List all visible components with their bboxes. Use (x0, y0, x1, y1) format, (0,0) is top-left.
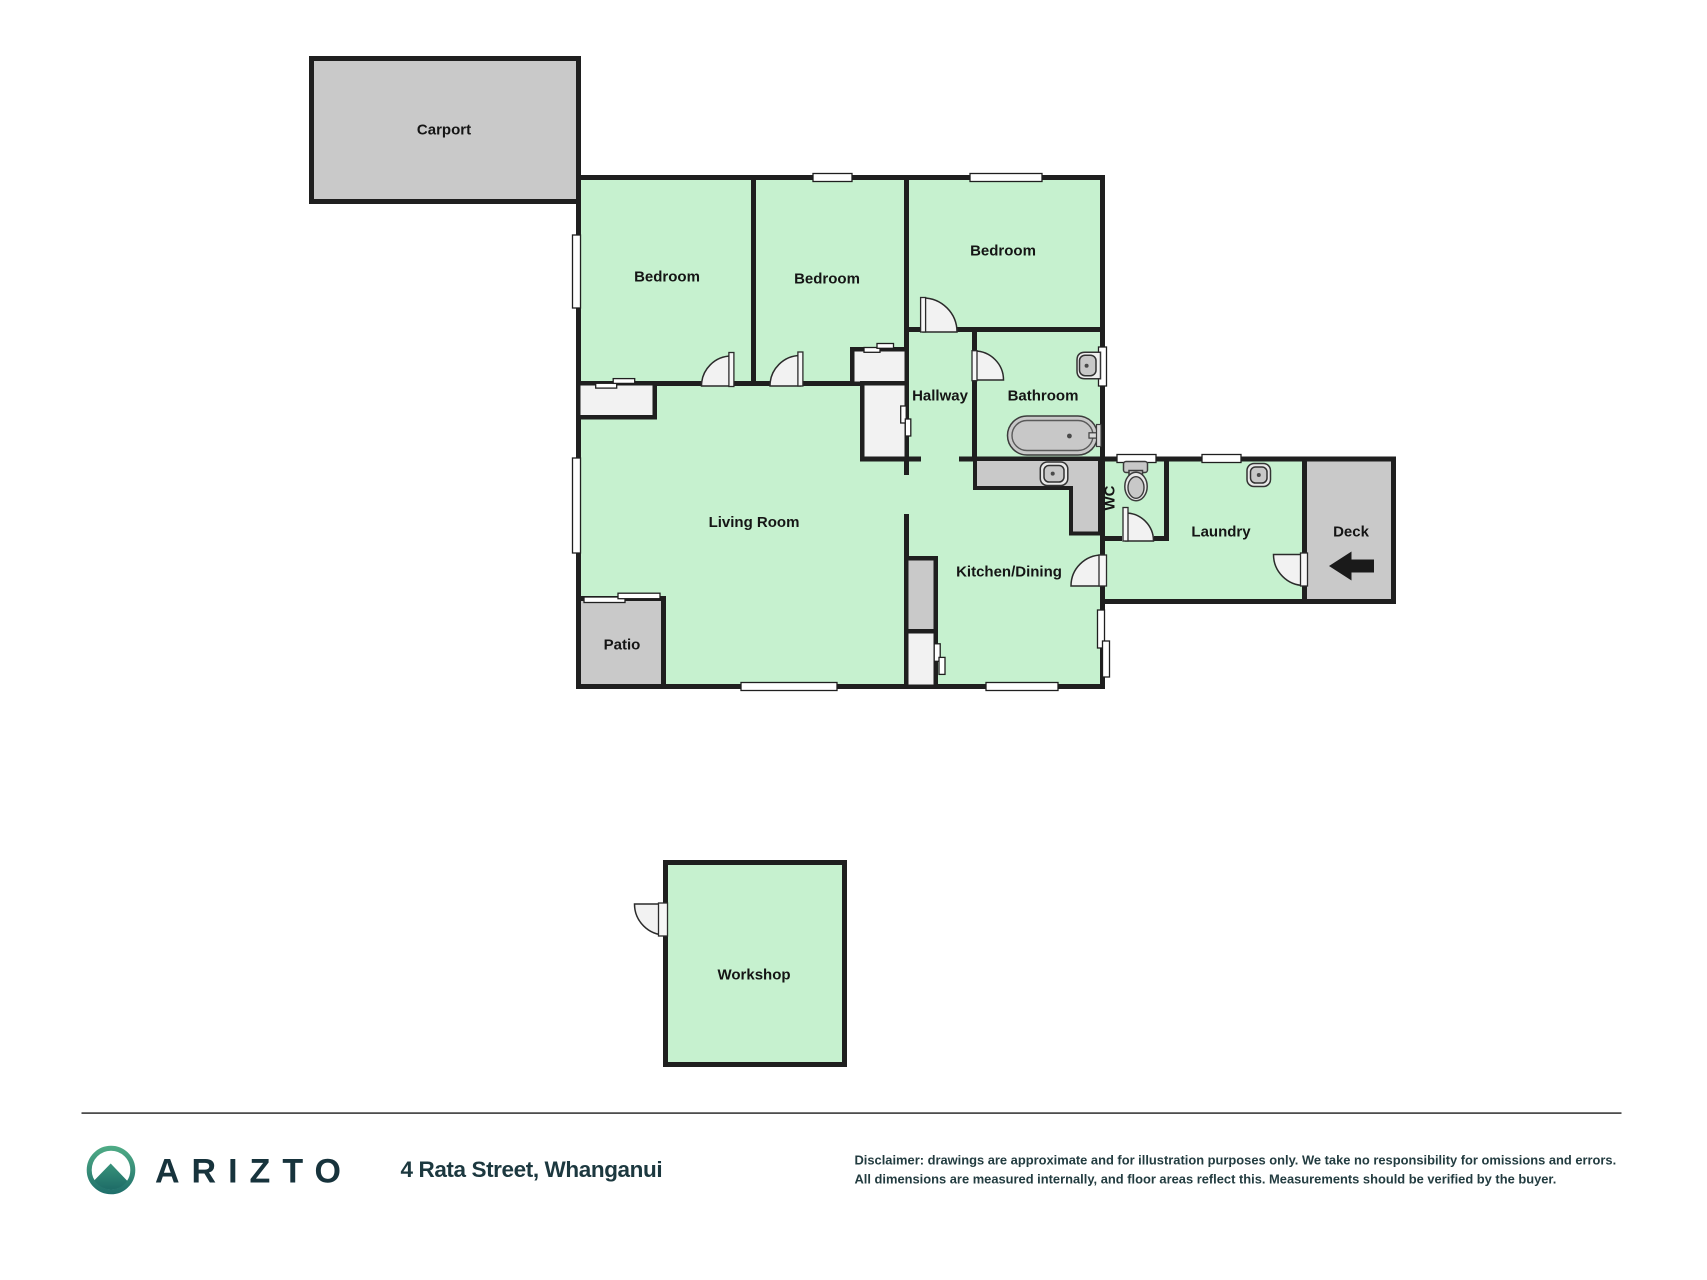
svg-text:Bathroom: Bathroom (1008, 388, 1079, 405)
svg-text:Bedroom: Bedroom (634, 269, 700, 286)
svg-text:Deck: Deck (1333, 524, 1370, 541)
svg-text:4 Rata Street, Whanganui: 4 Rata Street, Whanganui (401, 1157, 663, 1182)
svg-text:Carport: Carport (417, 122, 471, 139)
svg-text:Kitchen/Dining: Kitchen/Dining (956, 564, 1062, 581)
svg-text:Bedroom: Bedroom (794, 271, 860, 288)
svg-text:Hallway: Hallway (912, 388, 969, 405)
svg-text:All dimensions are measured in: All dimensions are measured internally, … (855, 1172, 1557, 1187)
svg-text:Patio: Patio (604, 637, 641, 654)
svg-text:ARIZTO: ARIZTO (155, 1153, 353, 1191)
svg-text:Living Room: Living Room (709, 514, 800, 531)
svg-text:Laundry: Laundry (1191, 524, 1251, 541)
svg-text:WC: WC (1102, 485, 1119, 510)
svg-text:Workshop: Workshop (717, 967, 790, 984)
svg-text:Disclaimer: drawings are appro: Disclaimer: drawings are approximate and… (855, 1153, 1617, 1168)
svg-text:Bedroom: Bedroom (970, 243, 1036, 260)
